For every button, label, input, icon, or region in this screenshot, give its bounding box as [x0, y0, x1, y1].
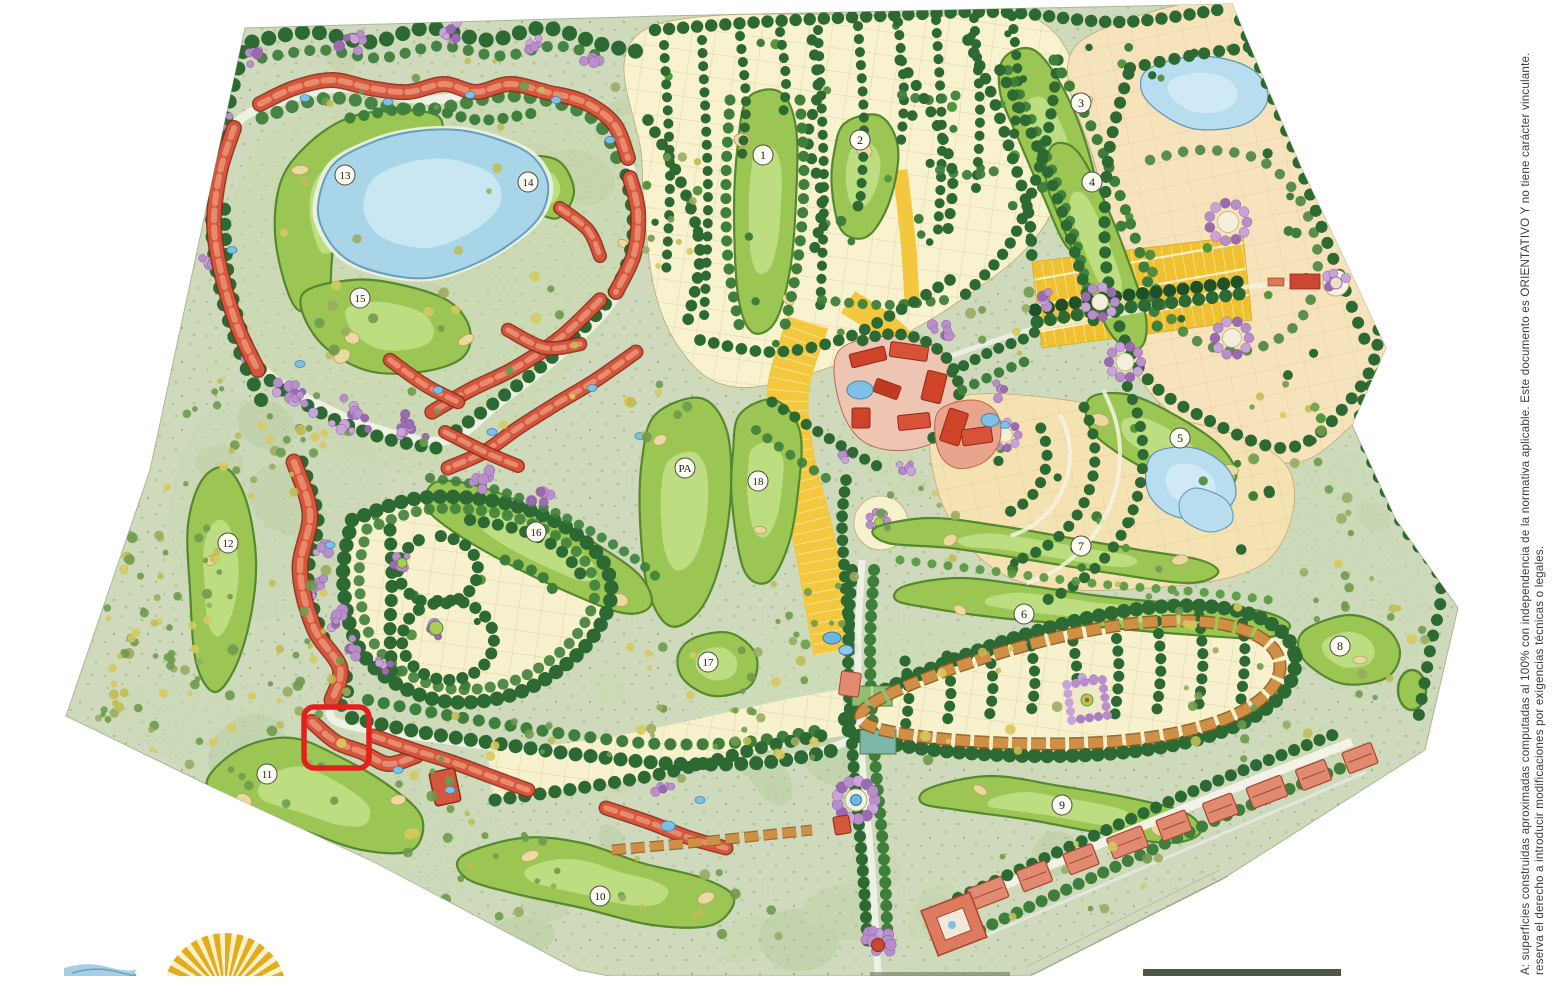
svg-text:14: 14 [523, 177, 535, 189]
svg-text:13: 13 [340, 170, 352, 182]
svg-text:9: 9 [1059, 798, 1065, 812]
svg-text:A: superficies construidas apr: A: superficies construidas aproximadas c… [1519, 52, 1532, 975]
svg-text:11: 11 [262, 769, 273, 781]
svg-text:5: 5 [1177, 431, 1183, 445]
svg-text:17: 17 [703, 657, 715, 669]
svg-text:reserva el derecho a introduci: reserva el derecho a introducir modifica… [1533, 546, 1546, 975]
svg-text:16: 16 [531, 527, 543, 539]
svg-text:15: 15 [355, 293, 367, 305]
svg-text:12: 12 [223, 538, 234, 550]
svg-text:18: 18 [753, 476, 765, 488]
svg-text:10: 10 [595, 891, 607, 903]
svg-text:3: 3 [1078, 96, 1084, 110]
svg-text:PA: PA [678, 463, 691, 475]
svg-text:1: 1 [760, 148, 766, 162]
svg-text:4: 4 [1089, 175, 1095, 189]
svg-text:7: 7 [1078, 539, 1084, 553]
svg-text:8: 8 [1337, 639, 1343, 653]
svg-text:6: 6 [1021, 607, 1027, 621]
svg-text:2: 2 [857, 133, 863, 147]
